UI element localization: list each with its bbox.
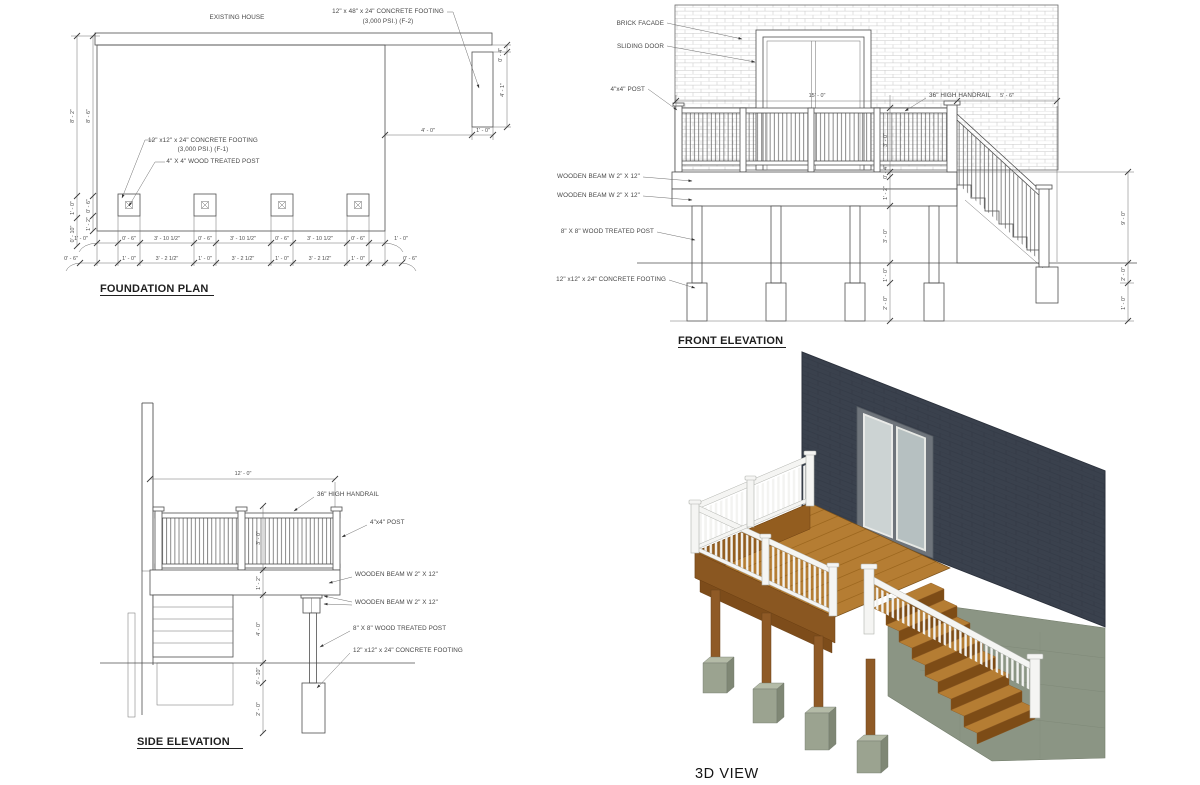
view-3d-title: 3D VIEW (695, 766, 759, 782)
beam1-label: WOODEN BEAM W 2" X 12" (355, 571, 438, 578)
house-wall (128, 403, 153, 717)
dim-chain-3: 0' - 10" (256, 668, 262, 685)
side-elevation-drawing: 12' - 0" 3' - 0" 1' - 2" 4' - 0" 0' - 10… (95, 385, 525, 765)
door-glass-left (864, 414, 892, 537)
bottom-dim-row2: 0' - 6" 1' - 0" 3' - 2 1/2" 1' - 0" 3' -… (64, 256, 417, 271)
footing-label: 12" x12" x 24" CONCRETE FOOTING (353, 647, 463, 654)
f2-gap-dim: 4' - 0" 1' - 0" (382, 127, 496, 140)
beam2-label: WOODEN BEAM W 2" X 12" (557, 192, 640, 199)
dim-row2-2: 3' - 2 1/2" (156, 256, 179, 262)
existing-house-label: EXISTING HOUSE (210, 14, 265, 21)
view-3d-drawing: 3D VIEW (620, 340, 1200, 785)
dim-deck-width: 15' - 0" (809, 93, 826, 99)
dim-right-1: 2' - 0" (1121, 267, 1127, 281)
dim-row1-0: 1' - 0" (74, 236, 88, 242)
handrail-label: 36" HIGH HANDRAIL (317, 491, 379, 498)
footing-f2 (472, 52, 493, 127)
dim-row1-8: 1' - 0" (394, 236, 408, 242)
brick-facade-label: BRICK FACADE (617, 20, 664, 27)
dim-chain-1: 1' - 2" (256, 576, 262, 590)
front-elevation-view: BRICK FACADE SLIDING DOOR 4"x4" POST WOO… (537, 0, 1200, 368)
side-elevation-view: 12' - 0" 3' - 0" 1' - 2" 4' - 0" 0' - 10… (95, 385, 525, 765)
dim-right-2: 1' - 0" (1121, 296, 1127, 310)
dim-row2-1: 1' - 0" (122, 256, 136, 262)
f2-note-line1: 12" x 48" x 24" CONCRETE FOOTING (332, 8, 444, 15)
dim-row2-5: 1' - 0" (275, 256, 289, 262)
deck-railing (153, 507, 342, 570)
dim-f2-length: 4' - 1" (500, 83, 506, 97)
depth-dim: 12' - 0" (147, 471, 338, 507)
dim-row1-1: 0' - 6" (122, 236, 136, 242)
footing-blocks-3d (703, 657, 888, 773)
dim-mid-1: 0' - 4" (883, 165, 889, 179)
beam1-label: WOODEN BEAM W 2" X 12" (557, 173, 640, 180)
f2-note-line2: (3,000 PSI.) (F-2) (363, 18, 414, 25)
dim-chain-4: 2' - 0" (256, 702, 262, 716)
f1-note-line1: 12" x12" x 24" CONCRETE FOOTING (148, 137, 258, 144)
existing-house-wall (95, 33, 492, 45)
front-elevation-drawing: BRICK FACADE SLIDING DOOR 4"x4" POST WOO… (537, 0, 1200, 368)
view-3d: 3D VIEW (620, 340, 1200, 785)
handrail-label: 36" HIGH HANDRAIL (929, 92, 991, 99)
dim-row1-5: 0' - 6" (275, 236, 289, 242)
f1-note: 12" x12" x 24" CONCRETE FOOTING (3,000 P… (122, 137, 258, 198)
dim-row2-6: 3' - 2 1/2" (309, 256, 332, 262)
stair-side (153, 595, 233, 705)
dim-f2-top: 0' - 4" (498, 48, 504, 62)
side-elevation-title: SIDE ELEVATION (137, 736, 230, 748)
dim-row2-0: 0' - 6" (64, 256, 78, 262)
deck-railing (673, 103, 957, 172)
dim-row1-6: 3' - 10 1/2" (307, 236, 333, 242)
foundation-plan-view: EXISTING HOUSE 12" x12" x 24" CONCRETE F… (55, 0, 515, 310)
post88-label: 8" X 8" WOOD TREATED POST (353, 625, 446, 632)
footing-label: 12" x12" x 24" CONCRETE FOOTING (556, 276, 666, 283)
dim-f2-gap: 4' - 0" (421, 128, 435, 134)
dim-depth: 12' - 0" (235, 471, 252, 477)
dim-row2-4: 3' - 2 1/2" (232, 256, 255, 262)
drawing-sheet: { "palette": { "line": "#4f4f4f", "wall_… (0, 0, 1200, 785)
dim-f2-width: 1' - 0" (476, 128, 490, 134)
dim-left-outer-1: 8' - 2" (70, 109, 76, 123)
footings-f1 (118, 194, 369, 216)
dim-row1-4: 3' - 10 1/2" (230, 236, 256, 242)
foundation-plan-drawing: EXISTING HOUSE 12" x12" x 24" CONCRETE F… (55, 0, 515, 310)
deck-beams (672, 172, 957, 206)
dim-row2-3: 1' - 0" (198, 256, 212, 262)
dim-row1-3: 0' - 6" (198, 236, 212, 242)
dim-mid-2: 1' - 2" (883, 186, 889, 200)
dim-mid-0: 3' - 0" (883, 133, 889, 147)
dim-row1-2: 3' - 10 1/2" (154, 236, 180, 242)
dim-left-outer-2: 1' - 0" (70, 201, 76, 215)
deck-rim-beam (150, 570, 340, 595)
post88-label: 8" X 8" WOOD TREATED POST (561, 228, 654, 235)
dim-row2-8: 0' - 6" (403, 256, 417, 262)
support-posts (692, 206, 939, 283)
post-note-text: 4" X 4" WOOD TREATED POST (166, 158, 259, 165)
sliding-door-label: SLIDING DOOR (617, 43, 664, 50)
dim-row1-7: 0' - 6" (351, 236, 365, 242)
f2-dim-chain: 0' - 4" 4' - 1" (492, 42, 511, 130)
dim-left-inner-2: 0' - 6" (86, 199, 92, 213)
post44-label: 4"x4" POST (610, 86, 645, 93)
dim-chain-0: 3' - 0" (256, 531, 262, 545)
dim-stair-run: 5' - 6" (1000, 93, 1014, 99)
dim-mid-5: 2' - 0" (883, 296, 889, 310)
beam-and-post (301, 595, 325, 733)
dim-left-inner-3: 1' - 2" (86, 217, 92, 231)
dim-right-0: 9' - 0" (1121, 211, 1127, 225)
door-glass-right (897, 427, 925, 550)
foundation-plan-title: FOUNDATION PLAN (100, 283, 209, 295)
beam2-label: WOODEN BEAM W 2" X 12" (355, 599, 438, 606)
dim-row2-7: 1' - 0" (351, 256, 365, 262)
dim-mid-3: 3' - 0" (883, 229, 889, 243)
post44-label: 4"x4" POST (370, 519, 405, 526)
f2-note: 12" x 48" x 24" CONCRETE FOOTING (3,000 … (332, 8, 479, 88)
left-dim-chains: 8' - 2" 1' - 0" 0' - 10" 8' - 6" 0' - 6"… (70, 33, 100, 249)
dim-chain-2: 4' - 0" (256, 622, 262, 636)
dim-left-inner-1: 8' - 6" (86, 109, 92, 123)
dim-mid-4: 1' - 0" (883, 268, 889, 282)
f1-note-line2: (3,000 PSI.) (F-1) (178, 146, 229, 153)
